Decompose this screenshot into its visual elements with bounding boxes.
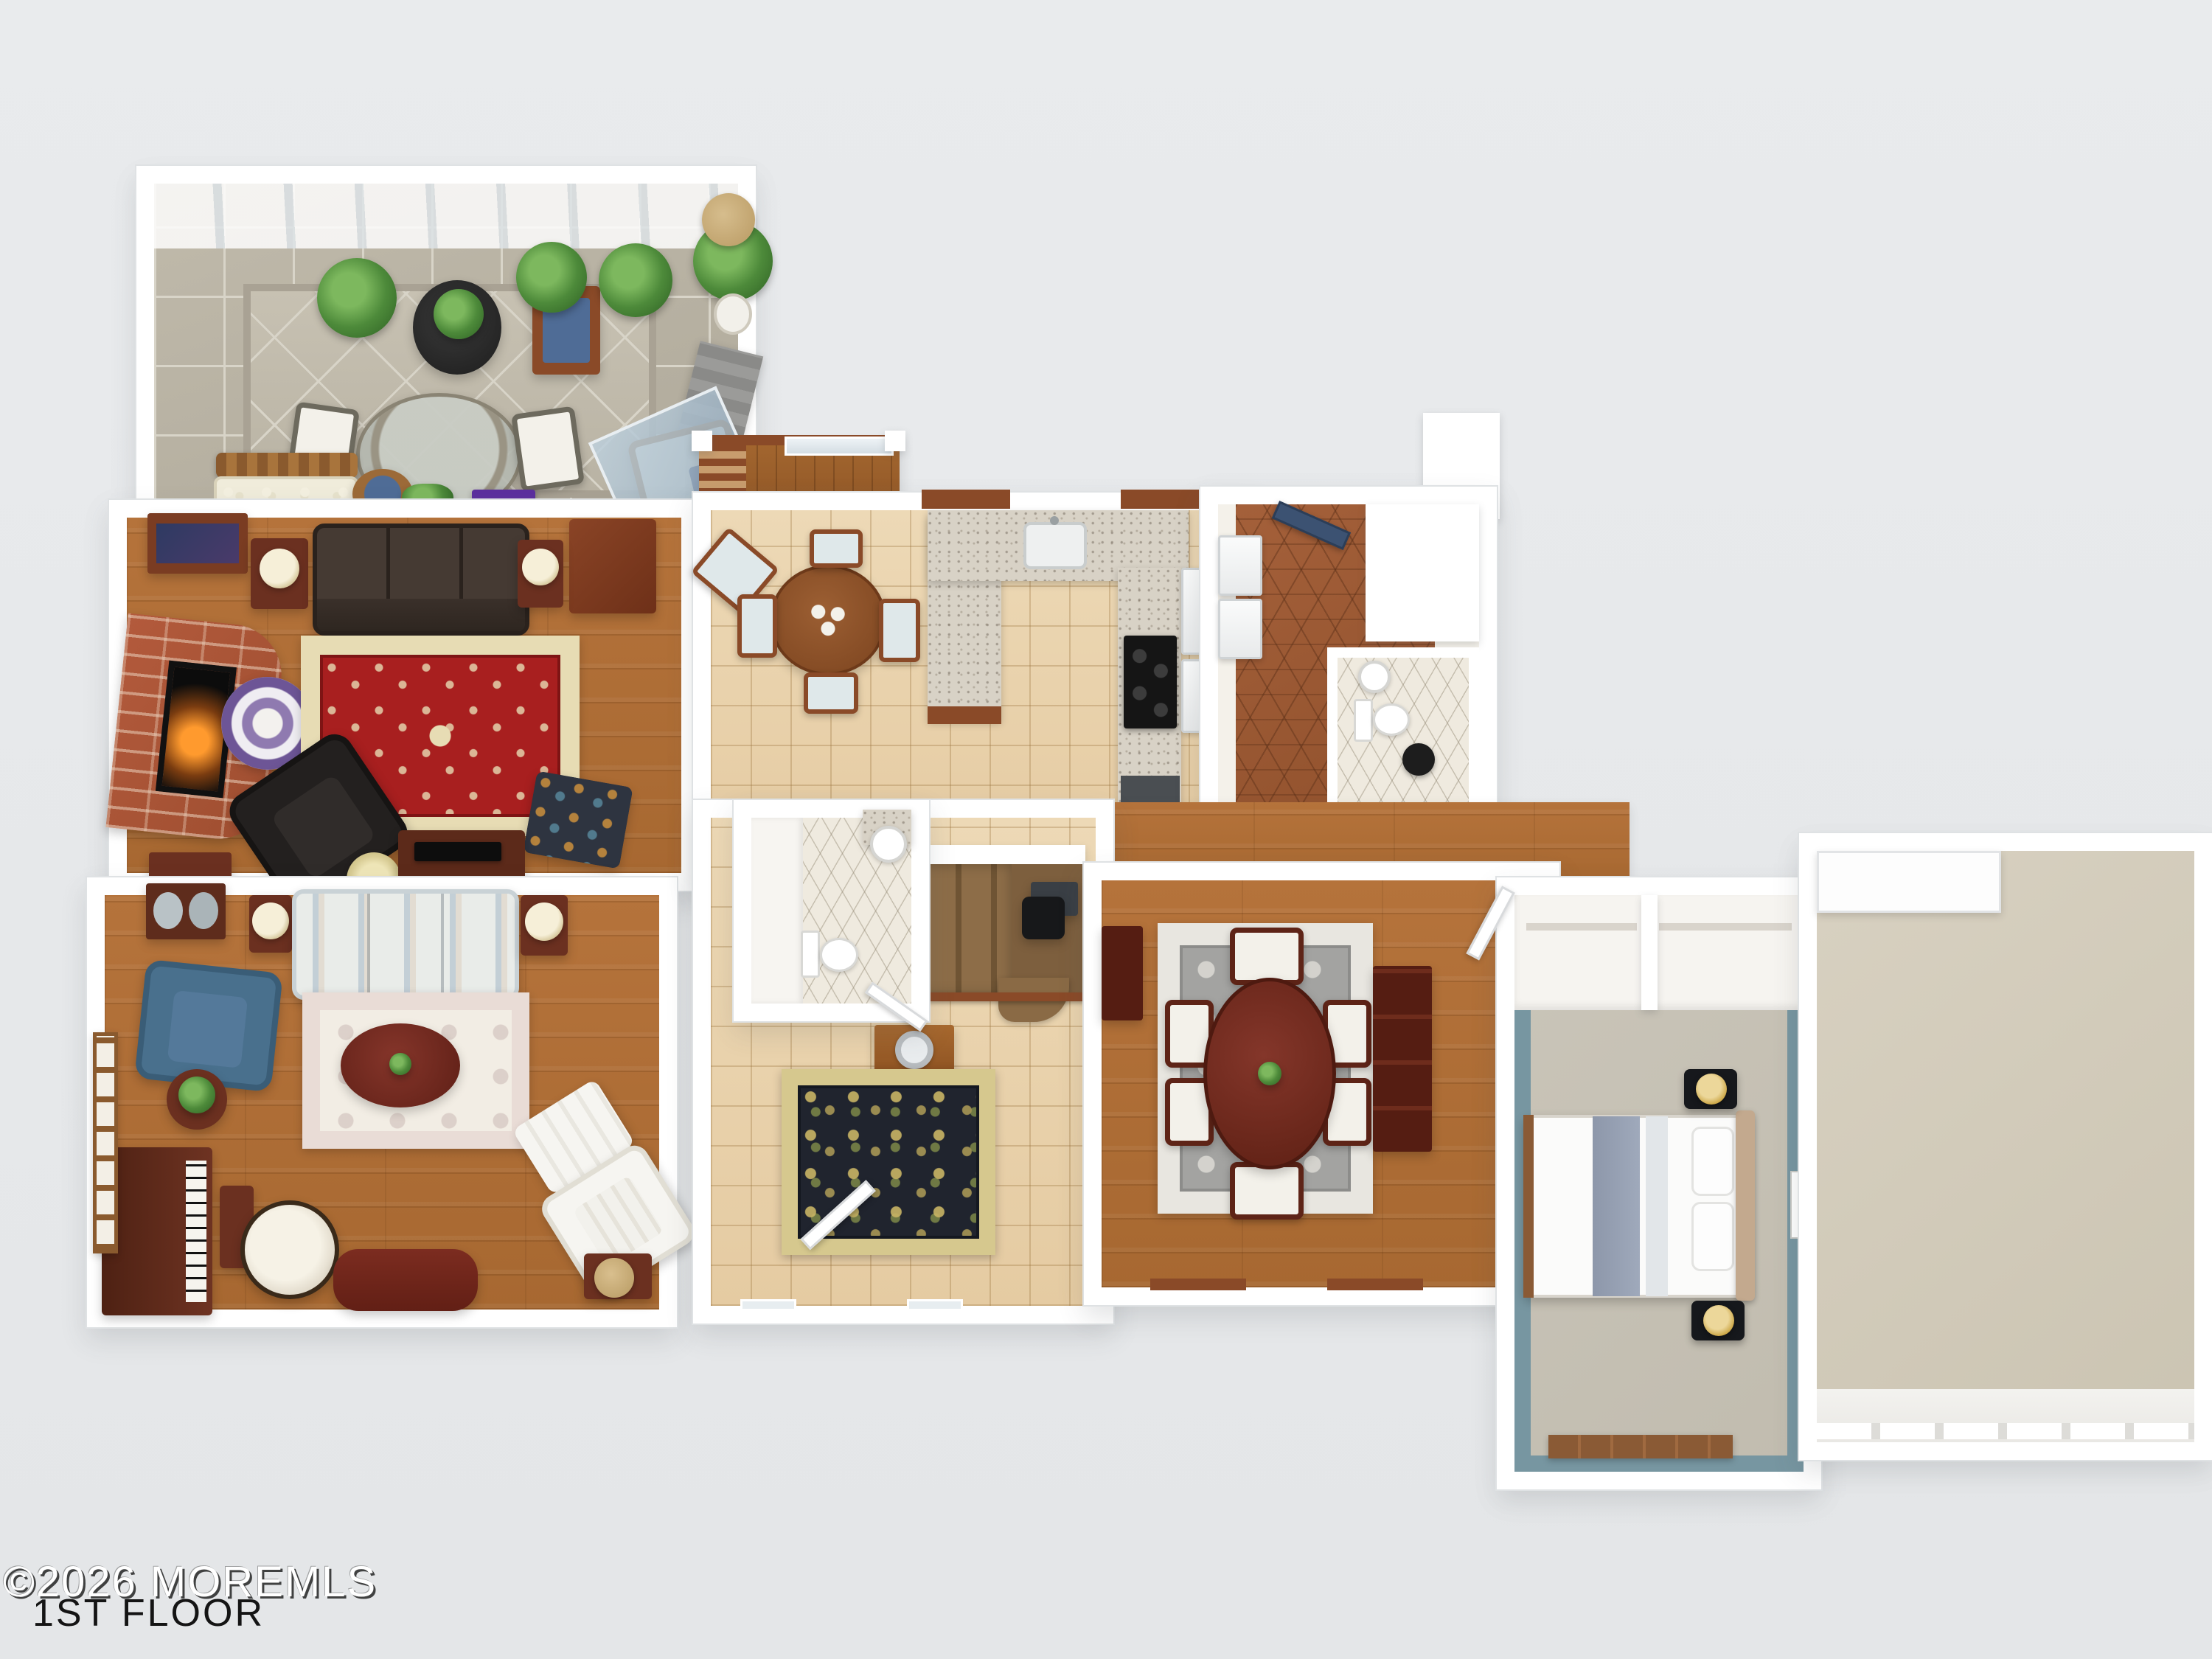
potted-plant	[434, 289, 484, 339]
table-lamp	[522, 549, 559, 585]
kitchen-chair	[879, 599, 920, 662]
white-planter-pot	[714, 293, 752, 335]
closet-divider-wall	[1641, 895, 1658, 1010]
mudroom-wall-notch	[1366, 504, 1479, 641]
curio-glass	[189, 892, 218, 929]
dining-centerpiece	[1258, 1062, 1281, 1085]
garage	[1799, 833, 2212, 1460]
cherry-chest	[569, 519, 656, 613]
tan-table-lamp	[594, 1258, 634, 1298]
potted-plant	[516, 242, 587, 313]
curio-glass	[153, 892, 183, 929]
bed-pillow	[1691, 1127, 1734, 1196]
closet-shelf	[1526, 923, 1637, 931]
piano-keys	[186, 1161, 206, 1302]
bedroom-dresser	[1548, 1435, 1733, 1458]
deck-post	[692, 431, 712, 451]
floor-label: 1ST FLOOR	[32, 1591, 265, 1635]
curio-cabinet	[146, 883, 226, 939]
toilet-bowl	[820, 938, 858, 972]
kitchen-chair	[810, 529, 863, 568]
nightstand-lamp	[1696, 1074, 1727, 1105]
dining-window-sill	[1327, 1279, 1423, 1290]
deck-post	[885, 431, 905, 451]
wicker-sofa-back	[216, 453, 358, 478]
damask-swivel-chair	[240, 1200, 339, 1299]
table-lamp	[525, 902, 563, 941]
hall-closet	[751, 818, 803, 1004]
potted-plant	[178, 1077, 215, 1113]
pedestal-sink	[1358, 661, 1391, 693]
floorplan-3d-render: ©2026 MOREMLS 1ST FLOOR	[0, 0, 2212, 1659]
bedroom-closet	[1514, 895, 1804, 1010]
dining-window-sill	[1150, 1279, 1246, 1290]
dining-chair	[1230, 928, 1304, 985]
kitchen-sink	[1023, 522, 1087, 569]
sofa-cushion-seam	[441, 894, 444, 995]
round-mirror	[895, 1031, 933, 1069]
dining-chair	[1230, 1162, 1304, 1220]
vanity-sink	[870, 826, 907, 863]
garage-cabinet	[1817, 851, 2001, 913]
china-hutch	[1373, 966, 1432, 1152]
flat-tv	[414, 842, 501, 861]
sunroom-glass-roof-beams	[154, 184, 738, 248]
bed-foot-rail	[1523, 1115, 1534, 1298]
nightstand-lamp	[1703, 1305, 1734, 1336]
washer	[1218, 535, 1262, 596]
armchair-cushion	[167, 990, 248, 1068]
buffet-cabinet	[1102, 926, 1143, 1020]
table-lamp	[252, 902, 289, 939]
upright-piano	[102, 1147, 212, 1315]
deck-glass-slider	[785, 437, 894, 456]
sidelight-window	[740, 1299, 796, 1311]
toilet-bowl	[1373, 703, 1410, 736]
kitchen-chair	[804, 672, 858, 714]
headboard	[1736, 1110, 1755, 1301]
garage-door-track	[1817, 1423, 2194, 1439]
striped-sofa	[292, 889, 519, 1000]
kitchen-chair	[737, 594, 777, 658]
bed-runner-blanket	[1593, 1116, 1640, 1296]
bed-pillow	[1691, 1202, 1734, 1271]
dryer	[1218, 599, 1262, 659]
place-settings	[804, 596, 852, 641]
media-cabinet	[147, 513, 248, 574]
sofa-cushion-seam	[367, 894, 370, 995]
black-wastebasket	[1402, 743, 1435, 776]
closet-shelf	[1659, 923, 1792, 931]
leather-sofa	[313, 524, 529, 636]
stove-cooktop	[1124, 636, 1177, 728]
red-bench-ottoman	[333, 1249, 478, 1311]
toilet-tank	[1354, 699, 1373, 742]
sofa-seat-edge	[317, 599, 525, 631]
table-centerpiece	[389, 1053, 411, 1075]
toilet-tank	[801, 931, 820, 978]
potted-plant	[317, 258, 397, 338]
paisley-ottoman	[523, 771, 633, 869]
peninsula-cabinet-front	[928, 706, 1001, 724]
sink-faucet	[1050, 516, 1059, 525]
sidelight-window	[907, 1299, 963, 1311]
cabinet-glass	[156, 524, 239, 563]
landing-chair	[1022, 897, 1065, 939]
table-lamp	[260, 549, 299, 588]
patio-chair	[511, 406, 585, 493]
kitchen-window-sill	[922, 490, 1010, 509]
shoji-screen	[93, 1032, 118, 1253]
bed-sheet-fold	[1646, 1116, 1668, 1296]
potted-plant	[599, 243, 672, 317]
arc-floor-lamp	[702, 193, 755, 246]
